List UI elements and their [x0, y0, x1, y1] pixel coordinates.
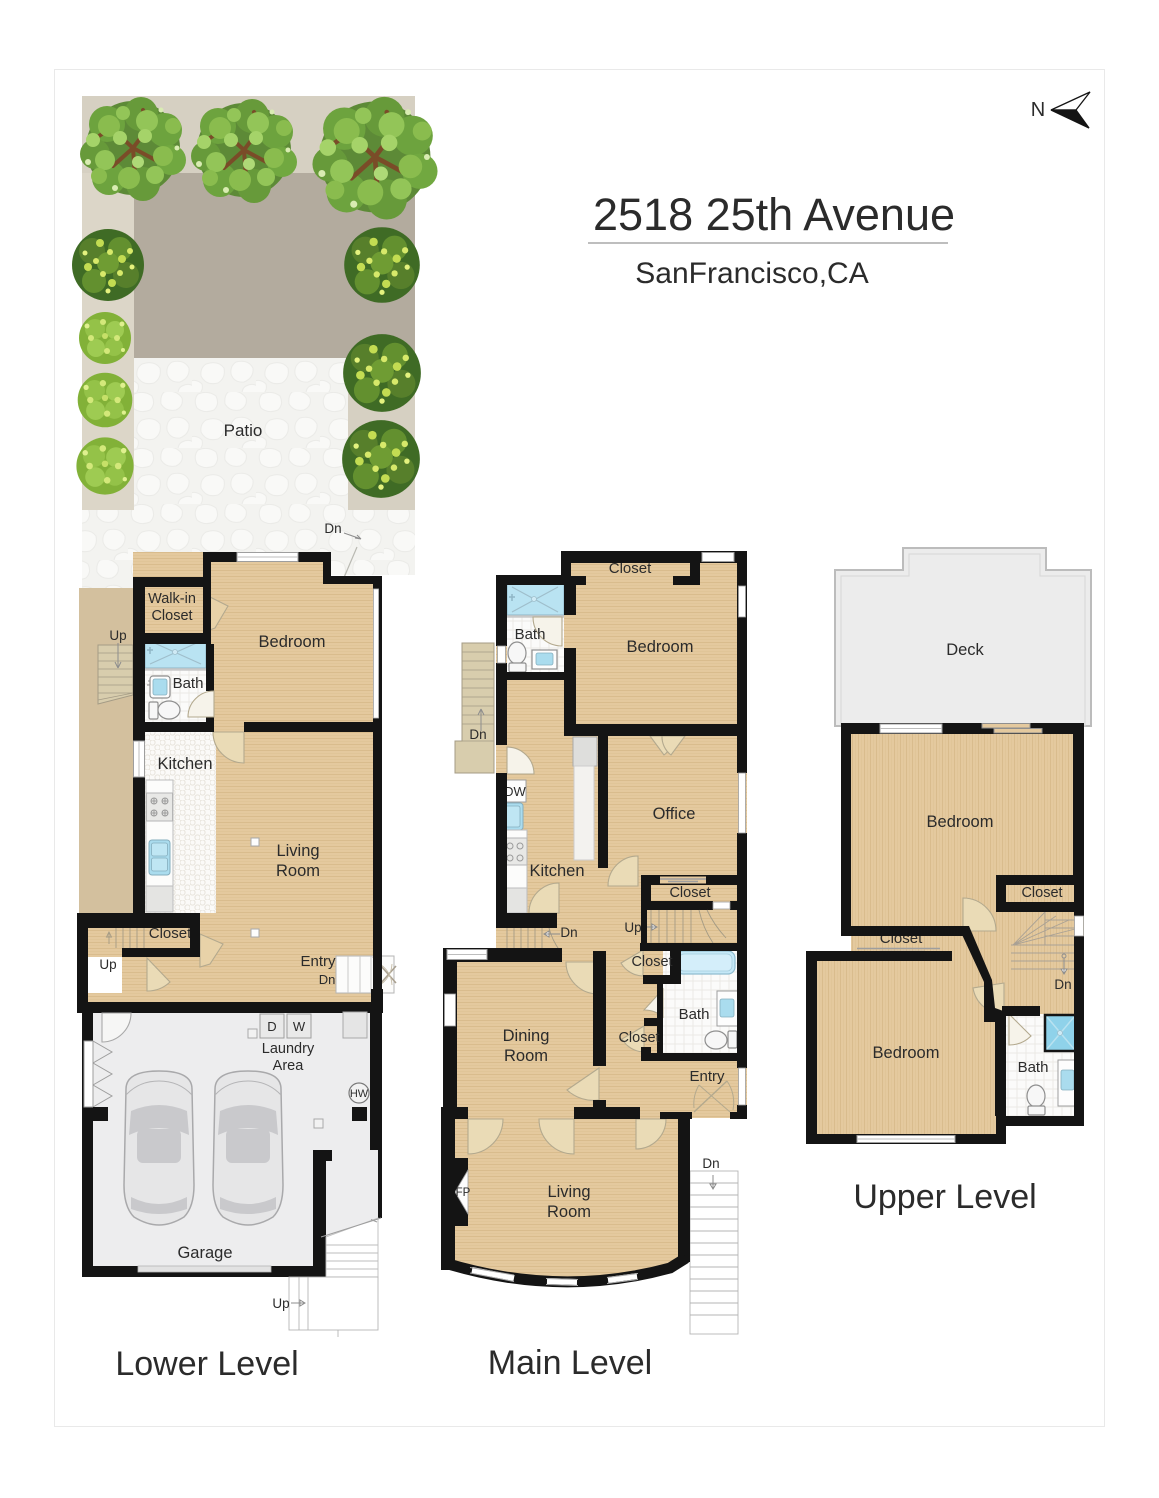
svg-text:Deck: Deck: [946, 641, 984, 659]
svg-text:Lower Level: Lower Level: [115, 1345, 298, 1383]
svg-text:Dn: Dn: [702, 1156, 719, 1171]
svg-text:Room: Room: [547, 1203, 591, 1221]
svg-text:Living: Living: [276, 842, 319, 860]
svg-text:Dn: Dn: [469, 727, 486, 742]
svg-text:Closet: Closet: [631, 954, 672, 970]
svg-text:HW: HW: [350, 1088, 369, 1100]
svg-text:Dining: Dining: [503, 1027, 550, 1045]
svg-text:Closet: Closet: [669, 885, 710, 901]
svg-text:Kitchen: Kitchen: [529, 862, 584, 880]
svg-text:Office: Office: [653, 805, 696, 823]
svg-text:Main Level: Main Level: [488, 1344, 652, 1382]
svg-text:Laundry: Laundry: [262, 1041, 315, 1057]
svg-text:Upper Level: Upper Level: [853, 1178, 1036, 1216]
svg-text:Up: Up: [109, 628, 126, 643]
svg-text:Room: Room: [276, 862, 320, 880]
svg-text:N: N: [1031, 99, 1045, 121]
svg-text:Closet: Closet: [151, 608, 192, 624]
svg-text:Bath: Bath: [173, 675, 204, 692]
svg-text:Bath: Bath: [515, 626, 546, 643]
svg-text:FP: FP: [456, 1187, 471, 1199]
svg-text:Up: Up: [272, 1296, 289, 1311]
svg-text:Closet: Closet: [618, 1030, 659, 1046]
svg-text:Bedroom: Bedroom: [627, 638, 694, 656]
svg-text:Bath: Bath: [679, 1006, 710, 1023]
svg-text:Up: Up: [99, 957, 116, 972]
svg-text:Bedroom: Bedroom: [873, 1044, 940, 1062]
svg-text:Patio: Patio: [224, 421, 263, 440]
svg-text:Closet: Closet: [1021, 885, 1062, 901]
svg-text:DW: DW: [504, 784, 526, 799]
svg-text:Walk-in: Walk-in: [148, 591, 196, 607]
svg-text:Bath: Bath: [1018, 1059, 1049, 1076]
svg-text:Entry: Entry: [689, 1068, 725, 1085]
svg-text:Dn: Dn: [1054, 977, 1071, 992]
svg-text:Up: Up: [624, 920, 641, 935]
svg-text:Living: Living: [547, 1183, 590, 1201]
svg-text:W: W: [293, 1019, 306, 1034]
svg-text:Garage: Garage: [177, 1244, 232, 1262]
svg-text:2518 25th Avenue: 2518 25th Avenue: [593, 189, 955, 240]
svg-text:SanFrancisco,CA: SanFrancisco,CA: [635, 257, 868, 290]
svg-text:Area: Area: [273, 1058, 305, 1074]
svg-text:Dn: Dn: [319, 972, 336, 987]
svg-text:D: D: [267, 1019, 276, 1034]
svg-text:Dn: Dn: [560, 925, 577, 940]
svg-text:Room: Room: [504, 1047, 548, 1065]
svg-text:Kitchen: Kitchen: [157, 755, 212, 773]
svg-text:Bedroom: Bedroom: [927, 813, 994, 831]
svg-text:Dn: Dn: [324, 521, 341, 536]
svg-text:Entry: Entry: [300, 953, 336, 970]
svg-text:Bedroom: Bedroom: [259, 633, 326, 651]
